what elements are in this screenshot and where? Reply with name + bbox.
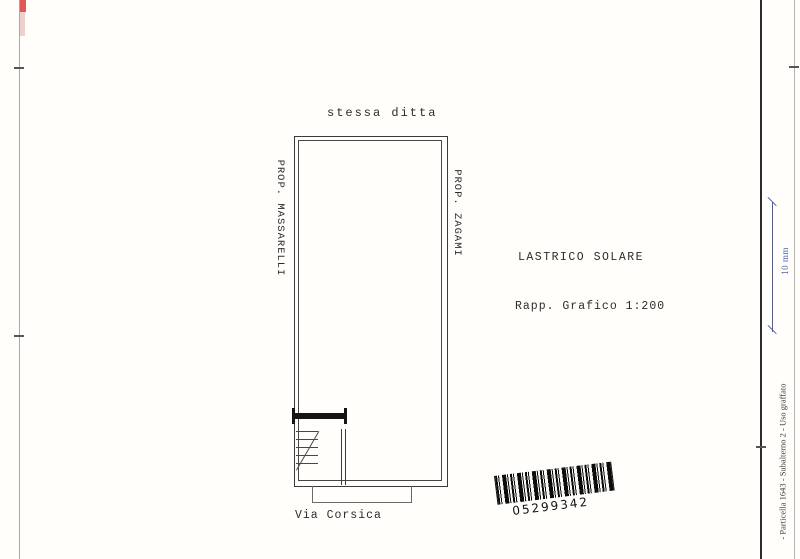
margin-side-note: - Particella 1643 - Subalterno 2 - Uso g… xyxy=(778,372,791,552)
right-margin-tick xyxy=(789,66,799,68)
red-stamp-mark-fade xyxy=(20,12,25,36)
street-label: Via Corsica xyxy=(295,509,382,522)
dimension-label: 10 mm xyxy=(780,226,790,296)
entry-porch-outline xyxy=(312,486,412,503)
left-margin-tick-lower xyxy=(14,335,24,337)
landing-beam xyxy=(293,413,347,419)
right-owner-label: PROP. ZAGAMI xyxy=(451,158,463,268)
red-stamp-mark xyxy=(20,0,26,12)
left-owner-label: PROP. MASSARELLI xyxy=(274,158,286,278)
barcode: 05299342 xyxy=(494,461,619,521)
right-border-tick xyxy=(756,446,766,448)
landing-beam-right-cap xyxy=(344,408,347,424)
top-label: stessa ditta xyxy=(327,106,437,120)
dimension-line xyxy=(772,202,773,332)
scanned-cadastral-plan-page: { "page": { "top_label": "stessa ditta",… xyxy=(0,0,800,559)
right-margin-line xyxy=(794,0,795,559)
left-margin-line xyxy=(19,0,20,559)
right-border-line xyxy=(760,0,762,559)
area-label: LASTRICO SOLARE xyxy=(518,251,644,264)
landing-beam-left-cap xyxy=(292,408,295,424)
left-margin-tick-upper xyxy=(14,67,24,69)
scale-label: Rapp. Grafico 1:200 xyxy=(515,300,665,313)
stairwell-wall xyxy=(341,429,346,485)
plan-inner-wall xyxy=(298,140,442,481)
